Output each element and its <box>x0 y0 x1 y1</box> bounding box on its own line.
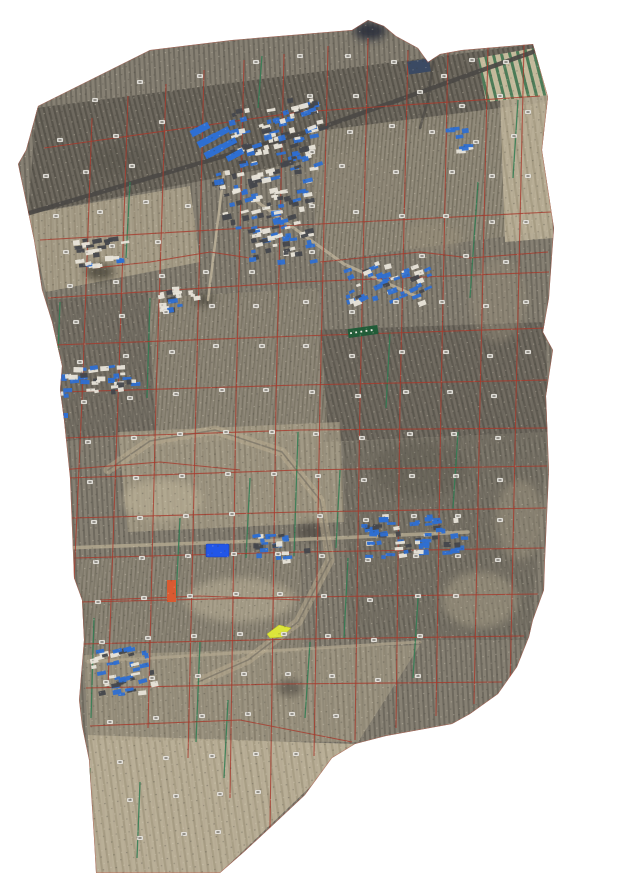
orthomosaic-clip-group <box>0 0 624 874</box>
orthomosaic-map[interactable] <box>0 0 624 874</box>
page-canvas <box>0 0 624 874</box>
